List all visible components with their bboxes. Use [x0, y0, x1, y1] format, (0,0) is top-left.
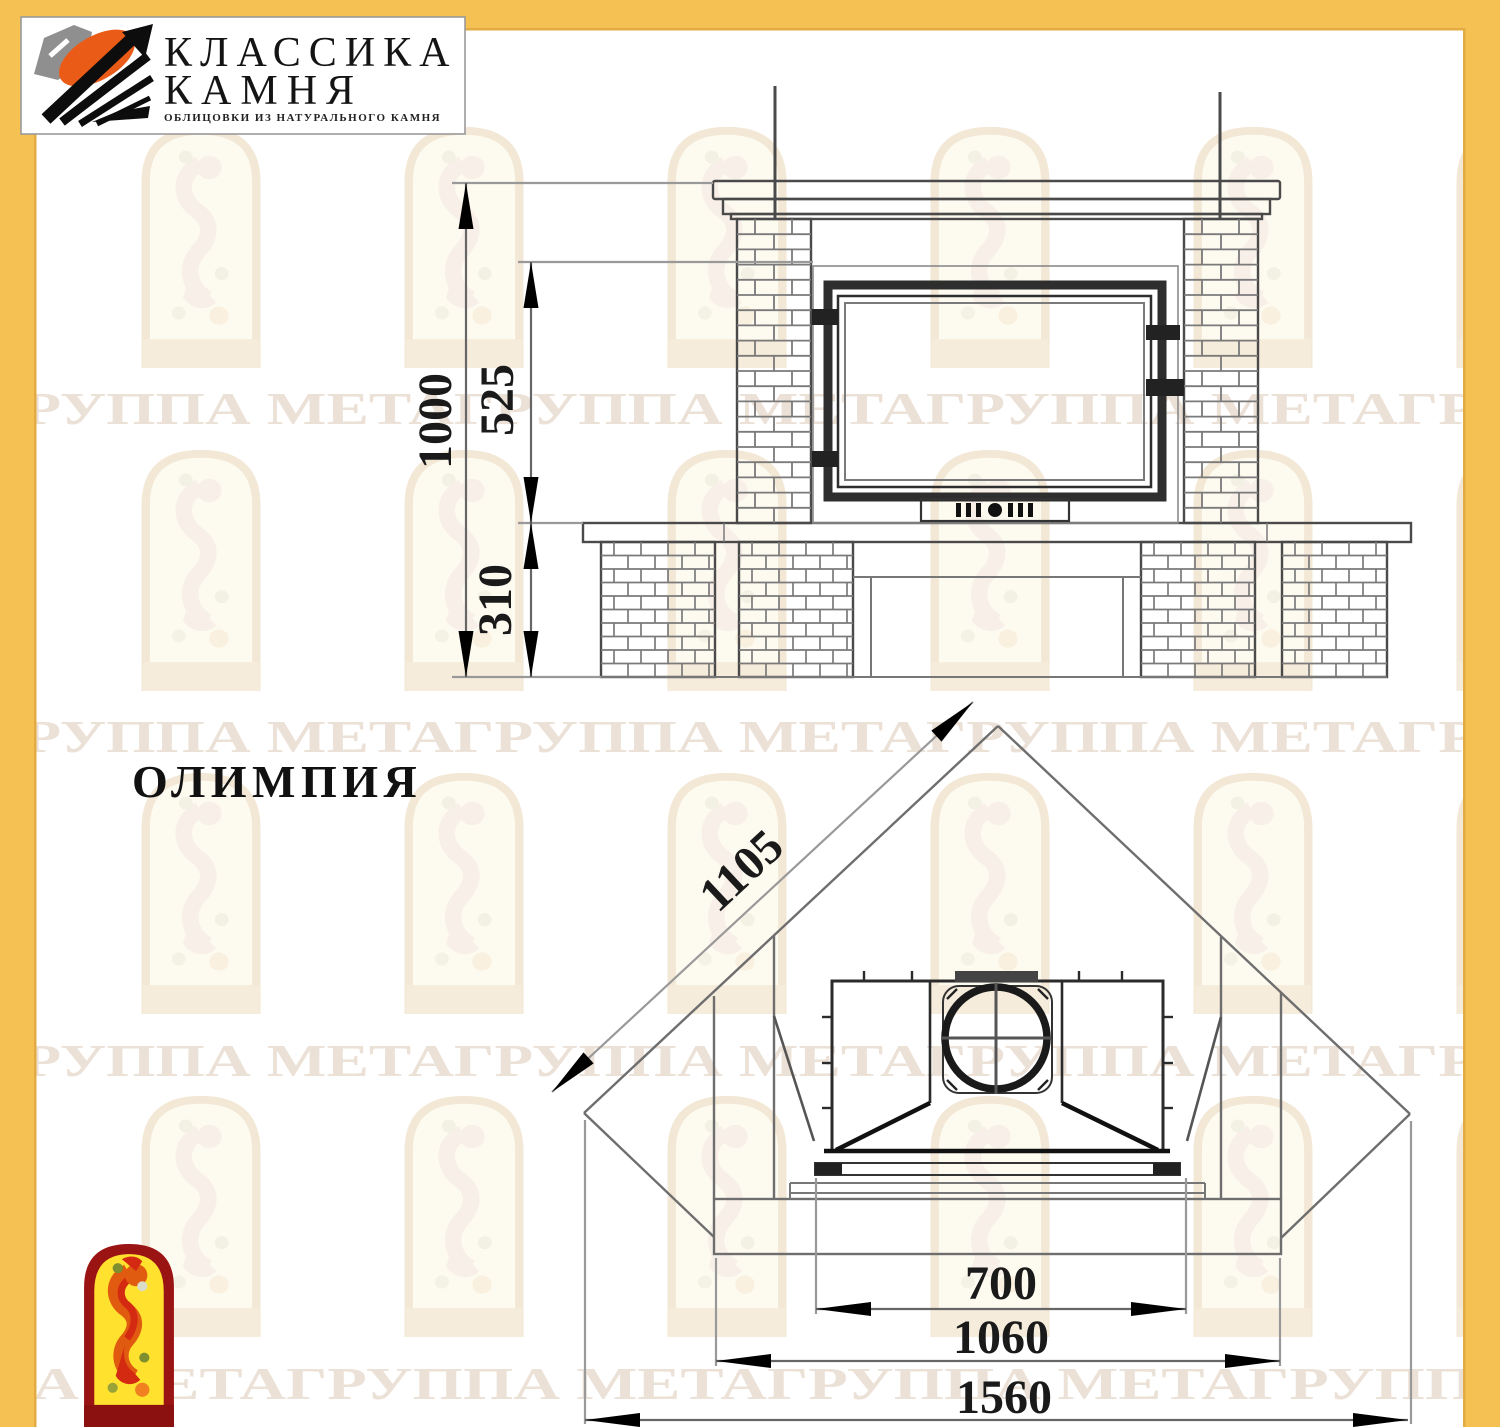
svg-text:1060: 1060	[953, 1311, 1049, 1364]
svg-text:310: 310	[469, 564, 522, 636]
svg-text:ПА МЕТАГРУППА МЕТАГРУППА МЕТАГ: ПА МЕТАГРУППА МЕТАГРУППА МЕТАГРУППА	[0, 1358, 1500, 1409]
svg-text:ГРУППА МЕТАГРУППА МЕТАГРУППА М: ГРУППА МЕТАГРУППА МЕТАГРУППА МЕТАГРУ	[0, 711, 1500, 762]
svg-text:ГРУППА МЕТАГРУППА МЕТАГРУППА М: ГРУППА МЕТАГРУППА МЕТАГРУППА МЕТАГРУ	[0, 1035, 1500, 1086]
svg-text:ОБЛИЦОВКИ ИЗ НАТУРАЛЬНОГО КАМН: ОБЛИЦОВКИ ИЗ НАТУРАЛЬНОГО КАМНЯ	[164, 112, 441, 124]
svg-text:ОЛИМПИЯ: ОЛИМПИЯ	[132, 756, 422, 807]
svg-text:700: 700	[965, 1257, 1037, 1310]
svg-text:КАМНЯ: КАМНЯ	[164, 68, 363, 114]
svg-text:ГРУППА МЕТАГРУППА МЕТАГРУППА М: ГРУППА МЕТАГРУППА МЕТАГРУППА МЕТАГРУ	[0, 383, 1500, 434]
svg-text:1560: 1560	[956, 1371, 1052, 1424]
svg-text:525: 525	[471, 364, 524, 436]
svg-text:1000: 1000	[409, 373, 462, 469]
